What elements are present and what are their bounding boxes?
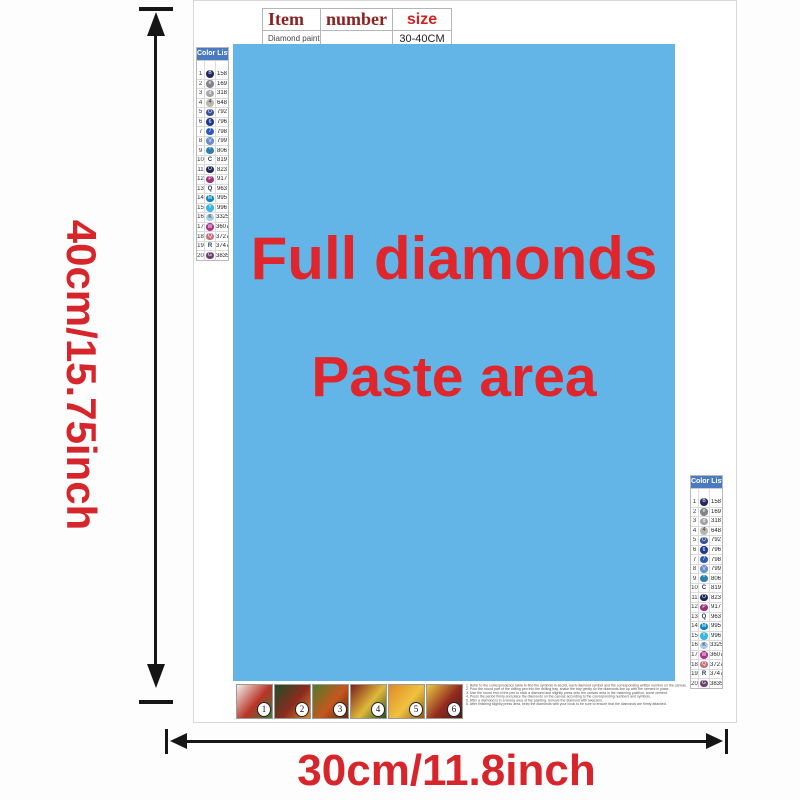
product-diagram: Item number size Diamond painting 30-40C…	[0, 0, 800, 800]
color-code: 169	[710, 509, 722, 515]
step-thumbnail: 3	[312, 684, 349, 719]
diamond-symbol: Q	[204, 232, 216, 241]
color-list-row: 19 R 3747	[197, 241, 228, 251]
color-row-number: 18	[691, 662, 698, 668]
color-row-number: 19	[691, 671, 698, 677]
color-row-number: 5	[691, 537, 698, 543]
color-code: 995	[710, 623, 722, 629]
diamond-symbol: d	[698, 517, 710, 526]
color-row-number: 7	[691, 557, 698, 563]
diamond-symbol: Y	[204, 204, 216, 213]
diamond-symbol: C	[204, 156, 216, 165]
color-list-row: 11 O 823	[691, 592, 722, 602]
color-row-number: 15	[197, 205, 204, 211]
step-thumbnail: 6	[426, 684, 463, 719]
diamond-symbol: 4	[204, 99, 216, 108]
diamond-symbol: 7	[698, 555, 710, 564]
paste-area-title-line1: Full diamonds	[233, 224, 675, 293]
color-list-row: 11 O 823	[197, 164, 228, 174]
step-number-badge: 2	[295, 702, 309, 717]
color-list-row: 14 M 995	[197, 193, 228, 203]
height-dimension-label: 40cm/15.75inch	[55, 205, 105, 545]
diamond-symbol: *	[698, 574, 710, 583]
color-list-row: 12 P 917	[691, 602, 722, 612]
diamond-symbol: Q	[698, 660, 710, 669]
color-row-number: 17	[691, 652, 698, 658]
color-code: 917	[710, 604, 722, 610]
color-code: 648	[710, 528, 722, 534]
col-color-header: Color	[710, 489, 722, 497]
color-list-row: 3 d 318	[197, 88, 228, 98]
color-list-row: 2 e 169	[691, 507, 722, 517]
diamond-symbol: e	[204, 80, 216, 89]
item-info-table: Item number size Diamond painting 30-40C…	[262, 8, 452, 47]
color-list-row: 1 B 158	[197, 69, 228, 79]
height-arrow-down-head	[147, 664, 165, 688]
color-code: 169	[216, 81, 228, 87]
color-list-left: Color List No. Diamond Color 1 B 158 2 e…	[196, 47, 229, 261]
step-number-badge: 5	[409, 702, 423, 717]
col-no-header: No.	[197, 61, 204, 69]
step-number-badge: 6	[447, 702, 461, 717]
color-row-number: 12	[691, 604, 698, 610]
color-list-row: 14 M 995	[691, 621, 722, 631]
col-color-header: Color	[216, 61, 228, 69]
col-no-header: No.	[691, 489, 698, 497]
diamond-symbol: Y	[698, 632, 710, 641]
color-code: 3747	[216, 243, 228, 249]
color-row-number: 13	[691, 614, 698, 620]
paste-area-title-line2: Paste area	[233, 344, 675, 410]
color-row-number: 1	[197, 71, 204, 77]
color-code: 3835	[216, 253, 228, 259]
height-arrow-top-cap	[139, 7, 173, 11]
color-code: 798	[710, 557, 722, 563]
color-list-row: 19 R 3747	[691, 669, 722, 679]
color-row-number: 10	[691, 585, 698, 591]
color-code: 996	[216, 205, 228, 211]
color-list-row: 13 Q 963	[197, 184, 228, 194]
diamond-symbol: W	[204, 223, 216, 232]
color-code: 799	[216, 138, 228, 144]
color-code: 648	[216, 100, 228, 106]
color-row-number: 12	[197, 176, 204, 182]
color-row-number: 2	[197, 81, 204, 87]
diamond-symbol: O	[204, 165, 216, 174]
color-list-title: Color List	[197, 48, 228, 60]
diamond-symbol: M	[698, 622, 710, 631]
color-row-number: 9	[691, 576, 698, 582]
color-list-row: 4 4 648	[691, 526, 722, 536]
color-list-row: 18 Q 3727	[691, 659, 722, 669]
color-list-row: 20 G 3835	[197, 250, 228, 260]
color-list-row: 10 C 819	[197, 155, 228, 165]
diamond-symbol: Q	[698, 613, 710, 622]
width-dimension-label: 30cm/11.8inch	[165, 746, 728, 796]
color-row-number: 6	[691, 547, 698, 553]
color-row-number: 6	[197, 119, 204, 125]
diamond-symbol: B	[204, 69, 216, 79]
color-list-row: 9 * 806	[691, 573, 722, 583]
color-code: 799	[710, 566, 722, 572]
diamond-symbol: O	[204, 108, 216, 117]
diamond-symbol: 6	[204, 118, 216, 127]
color-code: 3607	[710, 652, 722, 658]
color-row-number: 14	[691, 623, 698, 629]
color-row-number: 4	[691, 528, 698, 534]
color-row-number: 11	[197, 167, 204, 173]
instruction-line: 6. After finishing slightly press area, …	[466, 703, 736, 707]
color-list-row: 17 W 3607	[691, 650, 722, 660]
color-code: 158	[710, 499, 722, 505]
width-arrow-line	[185, 740, 708, 743]
color-code: 3727	[710, 662, 722, 668]
color-row-number: 7	[197, 129, 204, 135]
color-row-number: 9	[197, 148, 204, 154]
color-code: 318	[216, 90, 228, 96]
color-row-number: 18	[197, 234, 204, 240]
color-list-rows: 1 B 158 2 e 169 3 d 318 4 4 648 5 O 792 …	[197, 69, 228, 260]
color-code: 798	[216, 129, 228, 135]
color-row-number: 8	[197, 138, 204, 144]
diamond-symbol: 6	[698, 546, 710, 555]
color-list-row: 6 6 796	[197, 117, 228, 127]
color-row-number: 1	[691, 499, 698, 505]
color-list-row: 10 C 819	[691, 583, 722, 593]
color-row-number: 14	[197, 195, 204, 201]
diamond-symbol: C	[698, 584, 710, 593]
color-code: 792	[710, 537, 722, 543]
color-list-row: 7 7 798	[197, 126, 228, 136]
color-code: 819	[710, 585, 722, 591]
color-code: 963	[216, 186, 228, 192]
color-row-number: 5	[197, 109, 204, 115]
color-code: 3325	[216, 214, 228, 220]
color-list-row: 7 7 798	[691, 554, 722, 564]
diamond-symbol: *	[204, 146, 216, 155]
diamond-symbol: M	[204, 194, 216, 203]
diamond-symbol: O	[698, 536, 710, 545]
diamond-symbol: O	[698, 593, 710, 602]
color-code: 796	[710, 547, 722, 553]
color-list-title: Color List	[691, 476, 722, 488]
col-diamond-header: Diamond	[204, 61, 216, 69]
color-code: 806	[216, 148, 228, 154]
color-code: 806	[710, 576, 722, 582]
step-number-badge: 1	[257, 702, 271, 717]
color-row-number: 16	[197, 214, 204, 220]
color-list-row: 15 Y 996	[197, 203, 228, 213]
diamond-symbol: Q	[204, 185, 216, 194]
diamond-symbol: V	[204, 137, 216, 146]
color-code: 3727	[216, 234, 228, 240]
color-list-row: 4 4 648	[197, 98, 228, 108]
diamond-symbol: B	[698, 497, 710, 507]
color-list-row: 8 V 799	[691, 564, 722, 574]
color-row-number: 15	[691, 633, 698, 639]
color-list-row: 5 O 792	[691, 535, 722, 545]
color-row-number: 10	[197, 157, 204, 163]
number-column-header: number	[320, 9, 393, 30]
color-row-number: 3	[691, 518, 698, 524]
step-thumbnail: 1	[236, 684, 273, 719]
color-row-number: 20	[197, 253, 204, 259]
color-row-number: 19	[197, 243, 204, 249]
color-row-number: 3	[197, 90, 204, 96]
diamond-symbol: R	[204, 242, 216, 251]
diamond-symbol: 4	[698, 527, 710, 536]
color-list-row: 17 W 3607	[197, 222, 228, 232]
color-row-number: 17	[197, 224, 204, 230]
step-number-badge: 4	[371, 702, 385, 717]
color-list-row: 8 V 799	[197, 136, 228, 146]
diamond-symbol: 7	[204, 127, 216, 136]
color-code: 819	[216, 157, 228, 163]
color-code: 792	[216, 109, 228, 115]
color-code: 996	[710, 633, 722, 639]
color-list-row: 9 * 806	[197, 145, 228, 155]
height-arrow-line	[154, 35, 157, 667]
color-row-number: 11	[691, 595, 698, 601]
color-list-row: 5 O 792	[197, 107, 228, 117]
color-code: 963	[710, 614, 722, 620]
color-list-subheader: No. Diamond Color	[197, 60, 228, 69]
color-list-rows: 1 B 158 2 e 169 3 d 318 4 4 648 5 O 792 …	[691, 497, 722, 688]
color-list-subheader: No. Diamond Color	[691, 488, 722, 497]
color-row-number: 13	[197, 186, 204, 192]
diamond-symbol: d	[204, 89, 216, 98]
color-list-row: 15 Y 996	[691, 631, 722, 641]
instructions-text-block: 1. Refer to the correspondence table to …	[466, 684, 736, 706]
height-arrow-bottom-cap	[139, 700, 173, 704]
color-code: 823	[216, 167, 228, 173]
color-code: 3607	[216, 224, 228, 230]
diamond-symbol: V	[698, 565, 710, 574]
step-thumbnails-strip: 1 2 3 4 5 6	[236, 684, 463, 719]
diamond-symbol: e	[698, 508, 710, 517]
color-code: 318	[710, 518, 722, 524]
diamond-symbol: K	[204, 213, 216, 222]
color-code: 796	[216, 119, 228, 125]
color-row-number: 16	[691, 642, 698, 648]
color-row-number: 8	[691, 566, 698, 572]
color-list-row: 13 Q 963	[691, 612, 722, 622]
color-code: 158	[216, 71, 228, 77]
color-list-row: 6 6 796	[691, 545, 722, 555]
size-column-header: size	[393, 9, 451, 30]
color-code: 823	[710, 595, 722, 601]
diamond-symbol: W	[698, 651, 710, 660]
item-table-header-row: Item number size	[263, 9, 451, 30]
color-code: 3325	[710, 642, 722, 648]
color-code: 995	[216, 195, 228, 201]
color-list-row: 12 P 917	[197, 174, 228, 184]
height-arrow-up-head	[147, 12, 165, 36]
diamond-symbol: G	[204, 251, 216, 260]
col-diamond-header: Diamond	[698, 489, 710, 497]
color-list-row: 16 K 3325	[197, 212, 228, 222]
diamond-symbol: R	[698, 670, 710, 679]
item-column-header: Item	[263, 9, 320, 30]
diamond-symbol: P	[204, 175, 216, 184]
step-thumbnail: 4	[350, 684, 387, 719]
color-list-row: 3 d 318	[691, 516, 722, 526]
color-code: 917	[216, 176, 228, 182]
color-list-row: 18 Q 3727	[197, 231, 228, 241]
diamond-symbol: K	[698, 641, 710, 650]
color-row-number: 4	[197, 100, 204, 106]
color-row-number: 2	[691, 509, 698, 515]
color-code: 3747	[710, 671, 722, 677]
diamond-symbol: P	[698, 603, 710, 612]
color-list-right: Color List No. Diamond Color 1 B 158 2 e…	[690, 475, 723, 689]
color-list-row: 16 K 3325	[691, 640, 722, 650]
color-list-row: 1 B 158	[691, 497, 722, 507]
step-thumbnail: 5	[388, 684, 425, 719]
color-list-row: 2 e 169	[197, 79, 228, 89]
step-number-badge: 3	[333, 702, 347, 717]
step-thumbnail: 2	[274, 684, 311, 719]
